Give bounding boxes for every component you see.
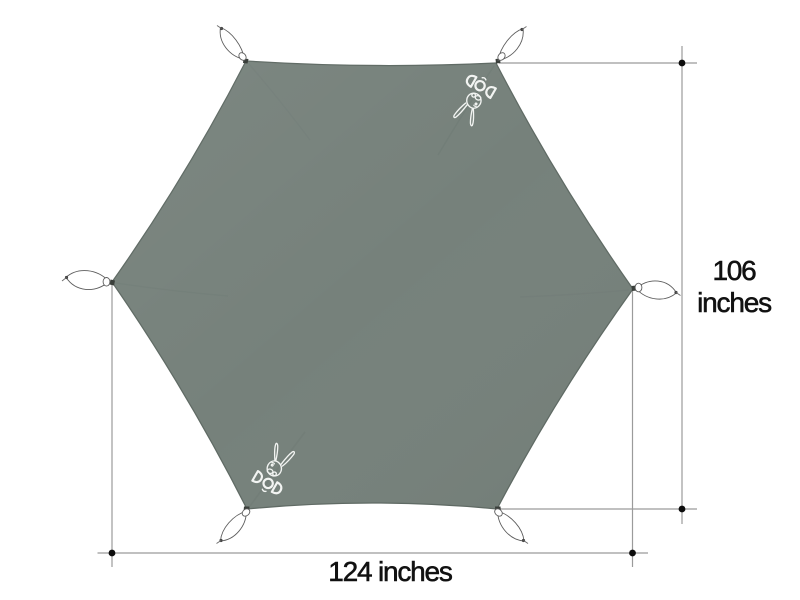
svg-text:124 inches: 124 inches [328,556,452,587]
svg-text:inches: inches [697,287,771,318]
svg-text:106: 106 [712,255,756,286]
